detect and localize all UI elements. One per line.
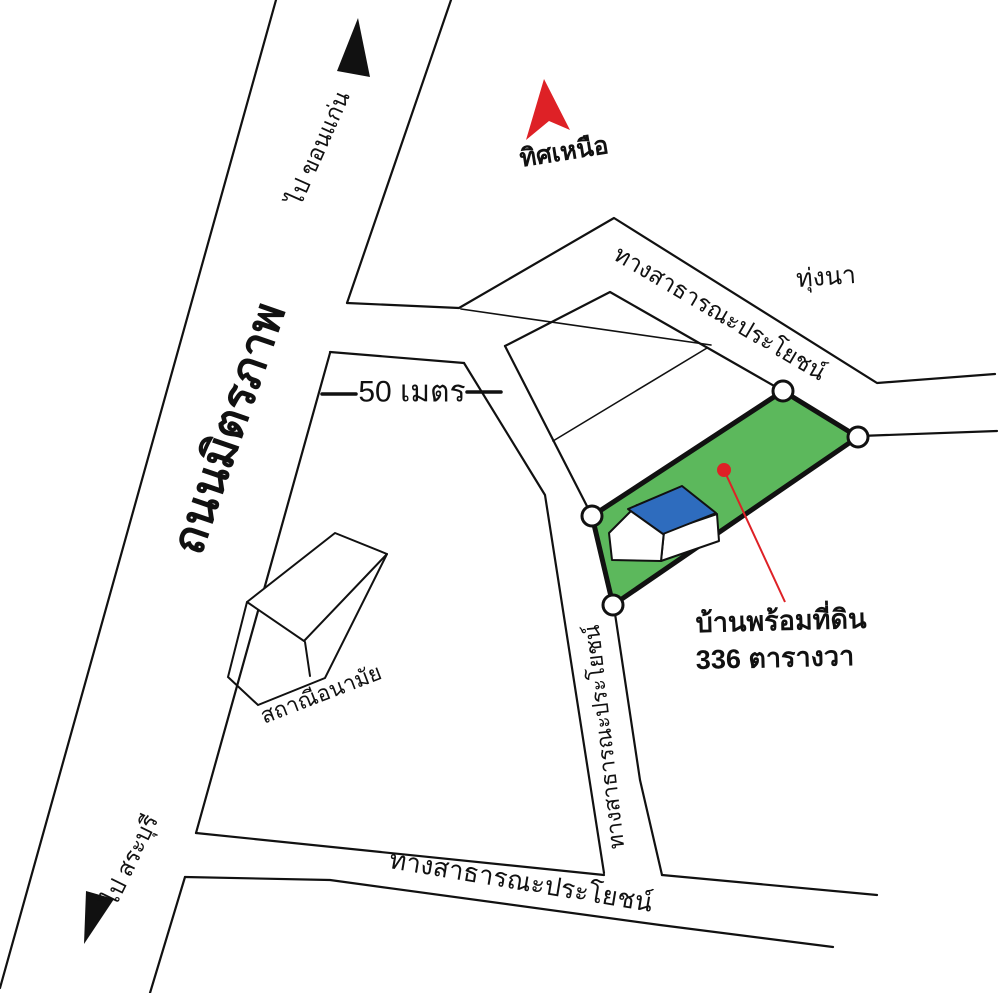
- property-label-line1: บ้านพร้อมที่ดิน: [695, 599, 867, 638]
- rice-field-label: ทุ่งนา: [795, 261, 857, 294]
- connector-road-bottom-edge: [330, 352, 464, 363]
- scale-label: 50 เมตร: [358, 376, 465, 409]
- plot-corner-marker-east: [848, 427, 868, 447]
- north-arrow-icon: [526, 79, 570, 140]
- plot-corner-marker-north: [773, 381, 793, 401]
- soi-right-edge-upper: [505, 346, 591, 514]
- soi-left-edge: [464, 363, 604, 873]
- public-road-ne-label: ทางสาธารณะประโยชน์: [610, 241, 831, 386]
- callout-dot: [717, 463, 731, 477]
- parcel-boundary-line-1: [461, 309, 711, 345]
- public-road-ne-bottom-edge: [505, 292, 783, 391]
- health-station-wall-corner: [305, 642, 310, 676]
- parcel-boundary-line-2: [553, 348, 707, 441]
- up-direction-arrow-icon: [337, 18, 370, 77]
- south-road-top-edge-east: [662, 875, 877, 895]
- to-saraburi-label: ไป สระบุรี: [96, 810, 164, 912]
- highway-right-edge-lower: [150, 877, 185, 993]
- highway-name-label: ถนนมิตรภาพ: [161, 296, 296, 561]
- public-road-ne-bottom-edge-east: [860, 431, 997, 436]
- property-label-line2: 336 ตารางวา: [695, 641, 854, 675]
- location-sketch-map: ถนนมิตรภาพ ไป ขอนแก่น ไป สระบุรี ทิศเหนื…: [0, 0, 1000, 993]
- map-canvas: ถนนมิตรภาพ ไป ขอนแก่น ไป สระบุรี ทิศเหนื…: [0, 0, 1000, 993]
- health-station-roof: [247, 533, 387, 641]
- north-label: ทิศเหนือ: [518, 131, 611, 173]
- public-road-ne-top-edge: [347, 218, 995, 383]
- plot-corner-marker-west: [582, 506, 602, 526]
- health-station-label: สถาณีอนามัย: [257, 659, 385, 728]
- to-khon-kaen-label: ไป ขอนแก่น: [280, 87, 354, 211]
- land-plot: [592, 391, 858, 605]
- plot-corner-marker-south: [603, 595, 623, 615]
